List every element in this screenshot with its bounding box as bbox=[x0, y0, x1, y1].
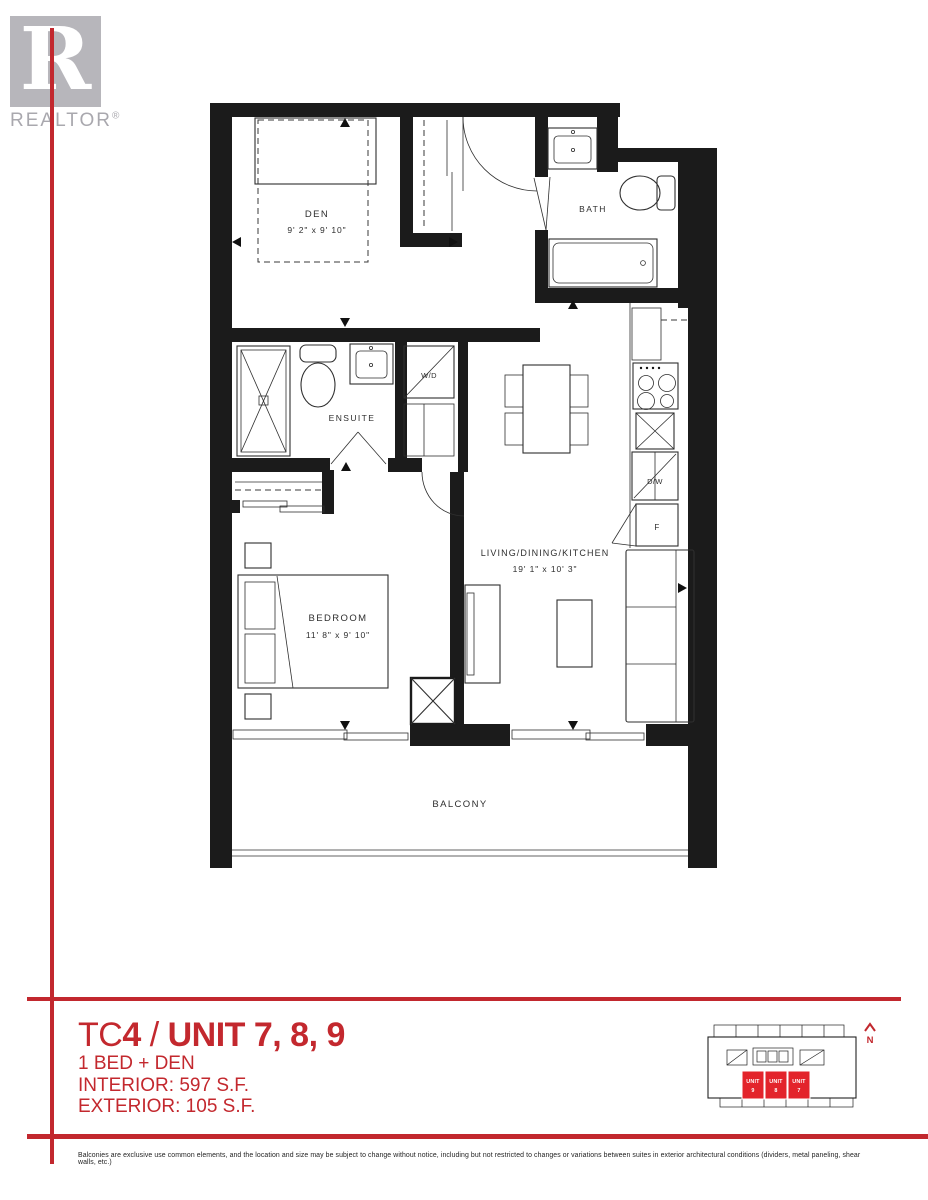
fridge-door-2 bbox=[612, 543, 636, 546]
wall-top bbox=[210, 103, 620, 117]
arrow-balcony-door-2 bbox=[568, 721, 578, 730]
tv-console bbox=[465, 585, 500, 683]
project-code: TC bbox=[78, 1016, 122, 1054]
unit-9-num: 9 bbox=[751, 1088, 754, 1094]
wall-bedroom-divider bbox=[450, 472, 464, 678]
laundry: W/D bbox=[404, 346, 454, 456]
den-flex-area bbox=[258, 120, 368, 262]
balcony-door-2a bbox=[512, 730, 590, 739]
north-label: N bbox=[867, 1035, 874, 1046]
burner-1 bbox=[639, 376, 654, 391]
burner-3 bbox=[638, 393, 655, 410]
ldk-label: LIVING/DINING/KITCHEN bbox=[481, 548, 610, 558]
balcony-door-1b bbox=[344, 733, 408, 740]
wd-label: W/D bbox=[421, 371, 437, 380]
unit-type: 1 BED + DEN bbox=[78, 1053, 345, 1075]
unit-8-text: UNIT bbox=[769, 1079, 783, 1085]
kp-elevator bbox=[779, 1051, 788, 1062]
chair-3 bbox=[570, 375, 588, 407]
tv bbox=[467, 593, 474, 675]
sofa bbox=[626, 550, 694, 722]
red-horizontal-rule-bottom bbox=[27, 1134, 928, 1139]
den-label: DEN bbox=[305, 209, 329, 220]
arrow-balcony-door-1 bbox=[340, 721, 350, 730]
burner-4 bbox=[661, 395, 674, 408]
bath-tub-inner bbox=[553, 243, 653, 283]
wall-left bbox=[210, 103, 232, 868]
entry-door-arc bbox=[463, 117, 537, 191]
wall-balcony-mid bbox=[410, 724, 510, 746]
unit-7-num: 7 bbox=[797, 1088, 800, 1094]
fridge-label: F bbox=[654, 523, 659, 532]
arrow-den-left bbox=[232, 237, 241, 247]
unit-9-text: UNIT bbox=[746, 1079, 760, 1085]
interior-area: INTERIOR: 597 S.F. bbox=[78, 1075, 345, 1097]
nightstand-bottom bbox=[245, 694, 271, 719]
ensuite-toilet-tank bbox=[300, 345, 336, 362]
arrow-ensuite-door bbox=[341, 462, 351, 471]
keyplan-unit-7 bbox=[788, 1071, 810, 1099]
fridge-door-1 bbox=[612, 504, 636, 543]
ensuite: ENSUITE bbox=[237, 344, 393, 456]
walls bbox=[210, 103, 717, 868]
ensuite-door-leaf2 bbox=[358, 432, 386, 464]
coffee-table bbox=[557, 600, 592, 667]
wall-den-closet bbox=[400, 117, 413, 233]
arrow-living-right bbox=[678, 583, 687, 593]
wall-bath-left-upper bbox=[535, 103, 548, 177]
bath-door-leaf bbox=[534, 178, 546, 230]
bedroom-label: BEDROOM bbox=[309, 613, 368, 624]
unit-7-text: UNIT bbox=[792, 1079, 806, 1085]
kp-stair-diag bbox=[727, 1050, 747, 1065]
wall-bath-bottom bbox=[535, 288, 688, 303]
bath-sink-tap bbox=[571, 130, 574, 133]
key-plan: UNIT 9 UNIT 8 UNIT 7 N bbox=[708, 1024, 875, 1107]
dining-table bbox=[523, 365, 570, 453]
pillow-2 bbox=[245, 634, 275, 683]
wall-wd-left bbox=[395, 342, 407, 470]
bath-label: BATH bbox=[579, 204, 607, 214]
exterior-area: EXTERIOR: 105 S.F. bbox=[78, 1096, 345, 1118]
living-dining-kitchen: LIVING/DINING/KITCHEN 19' 1" x 10' 3" bbox=[465, 303, 694, 722]
pillow-1 bbox=[245, 582, 275, 629]
wall-bath-divider bbox=[597, 103, 618, 172]
keyplan-unit-9 bbox=[742, 1071, 764, 1099]
bedroom-dims: 11' 8" x 9' 10" bbox=[306, 630, 370, 640]
cooktop bbox=[633, 363, 678, 409]
keyplan-balconies-top bbox=[714, 1025, 844, 1037]
den-dims: 9' 2" x 9' 10" bbox=[287, 225, 346, 235]
chair-1 bbox=[505, 375, 523, 407]
bed-fold-line bbox=[277, 576, 293, 688]
burner-2 bbox=[659, 375, 676, 392]
wall-column-side bbox=[455, 678, 464, 728]
title-separator: / bbox=[141, 1016, 168, 1054]
wall-bath-right bbox=[678, 162, 688, 308]
chair-4 bbox=[570, 413, 588, 445]
north-arrow-icon bbox=[865, 1024, 875, 1031]
ensuite-label: ENSUITE bbox=[329, 413, 376, 423]
cooktop-knob-4 bbox=[658, 367, 660, 369]
bath-tub-drain bbox=[641, 261, 646, 266]
title-block: TC4 / UNIT 7, 8, 9 1 BED + DEN INTERIOR:… bbox=[78, 1017, 345, 1118]
red-vertical-rule bbox=[50, 28, 54, 1164]
ensuite-sink-drain bbox=[369, 363, 372, 366]
nightstand-top bbox=[245, 543, 271, 568]
kp-elevator bbox=[768, 1051, 777, 1062]
wall-corridor-bottom bbox=[388, 458, 422, 472]
disclaimer-text: Balconies are exclusive use common eleme… bbox=[78, 1152, 878, 1166]
kp-stair-diag bbox=[800, 1050, 824, 1065]
kp-elevator bbox=[757, 1051, 766, 1062]
project-number: 4 bbox=[122, 1016, 140, 1054]
wall-wd-right bbox=[458, 342, 468, 472]
ensuite-sink-tap bbox=[369, 346, 372, 349]
bedroom-closet-jamb bbox=[230, 500, 240, 513]
red-horizontal-rule-top bbox=[27, 997, 901, 1001]
den-bed bbox=[255, 118, 376, 184]
keyplan-elevator-core bbox=[753, 1048, 793, 1065]
wall-mid bbox=[230, 328, 540, 342]
cooktop-knob-2 bbox=[646, 367, 648, 369]
cooktop-knob-1 bbox=[640, 367, 642, 369]
plan-title: TC4 / UNIT 7, 8, 9 bbox=[78, 1017, 345, 1053]
balcony-door-2b bbox=[586, 733, 644, 740]
chair-2 bbox=[505, 413, 523, 445]
balcony-door-1a bbox=[233, 730, 347, 739]
ldk-dims: 19' 1" x 10' 3" bbox=[513, 564, 578, 574]
balcony-label: BALCONY bbox=[432, 799, 487, 810]
dishwasher-label: D/W bbox=[647, 477, 663, 486]
bath-door-leaf2 bbox=[546, 177, 550, 230]
bedroom: BEDROOM 11' 8" x 9' 10" bbox=[230, 482, 455, 724]
keyplan-unit-8 bbox=[765, 1071, 787, 1099]
arrow-den-top bbox=[340, 118, 350, 127]
wall-right bbox=[688, 148, 717, 868]
wd-cabinet bbox=[404, 404, 454, 456]
ensuite-toilet-bowl bbox=[301, 363, 335, 407]
bath-sink-drain bbox=[571, 148, 574, 151]
bath-sink-basin bbox=[554, 136, 591, 163]
balcony: BALCONY bbox=[232, 730, 688, 856]
ensuite-door-leaf bbox=[331, 432, 358, 464]
kitchen-cabinet bbox=[632, 308, 661, 360]
ensuite-sink-basin bbox=[356, 351, 387, 378]
unit-numbers: UNIT 7, 8, 9 bbox=[168, 1016, 345, 1054]
wall-balcony-right bbox=[646, 724, 688, 746]
unit-8-num: 8 bbox=[774, 1088, 777, 1094]
arrow-den-bottom bbox=[340, 318, 350, 327]
wall-ensuite-bottom bbox=[230, 458, 330, 472]
bath-toilet-bowl bbox=[620, 176, 660, 210]
cooktop-knob-3 bbox=[652, 367, 654, 369]
